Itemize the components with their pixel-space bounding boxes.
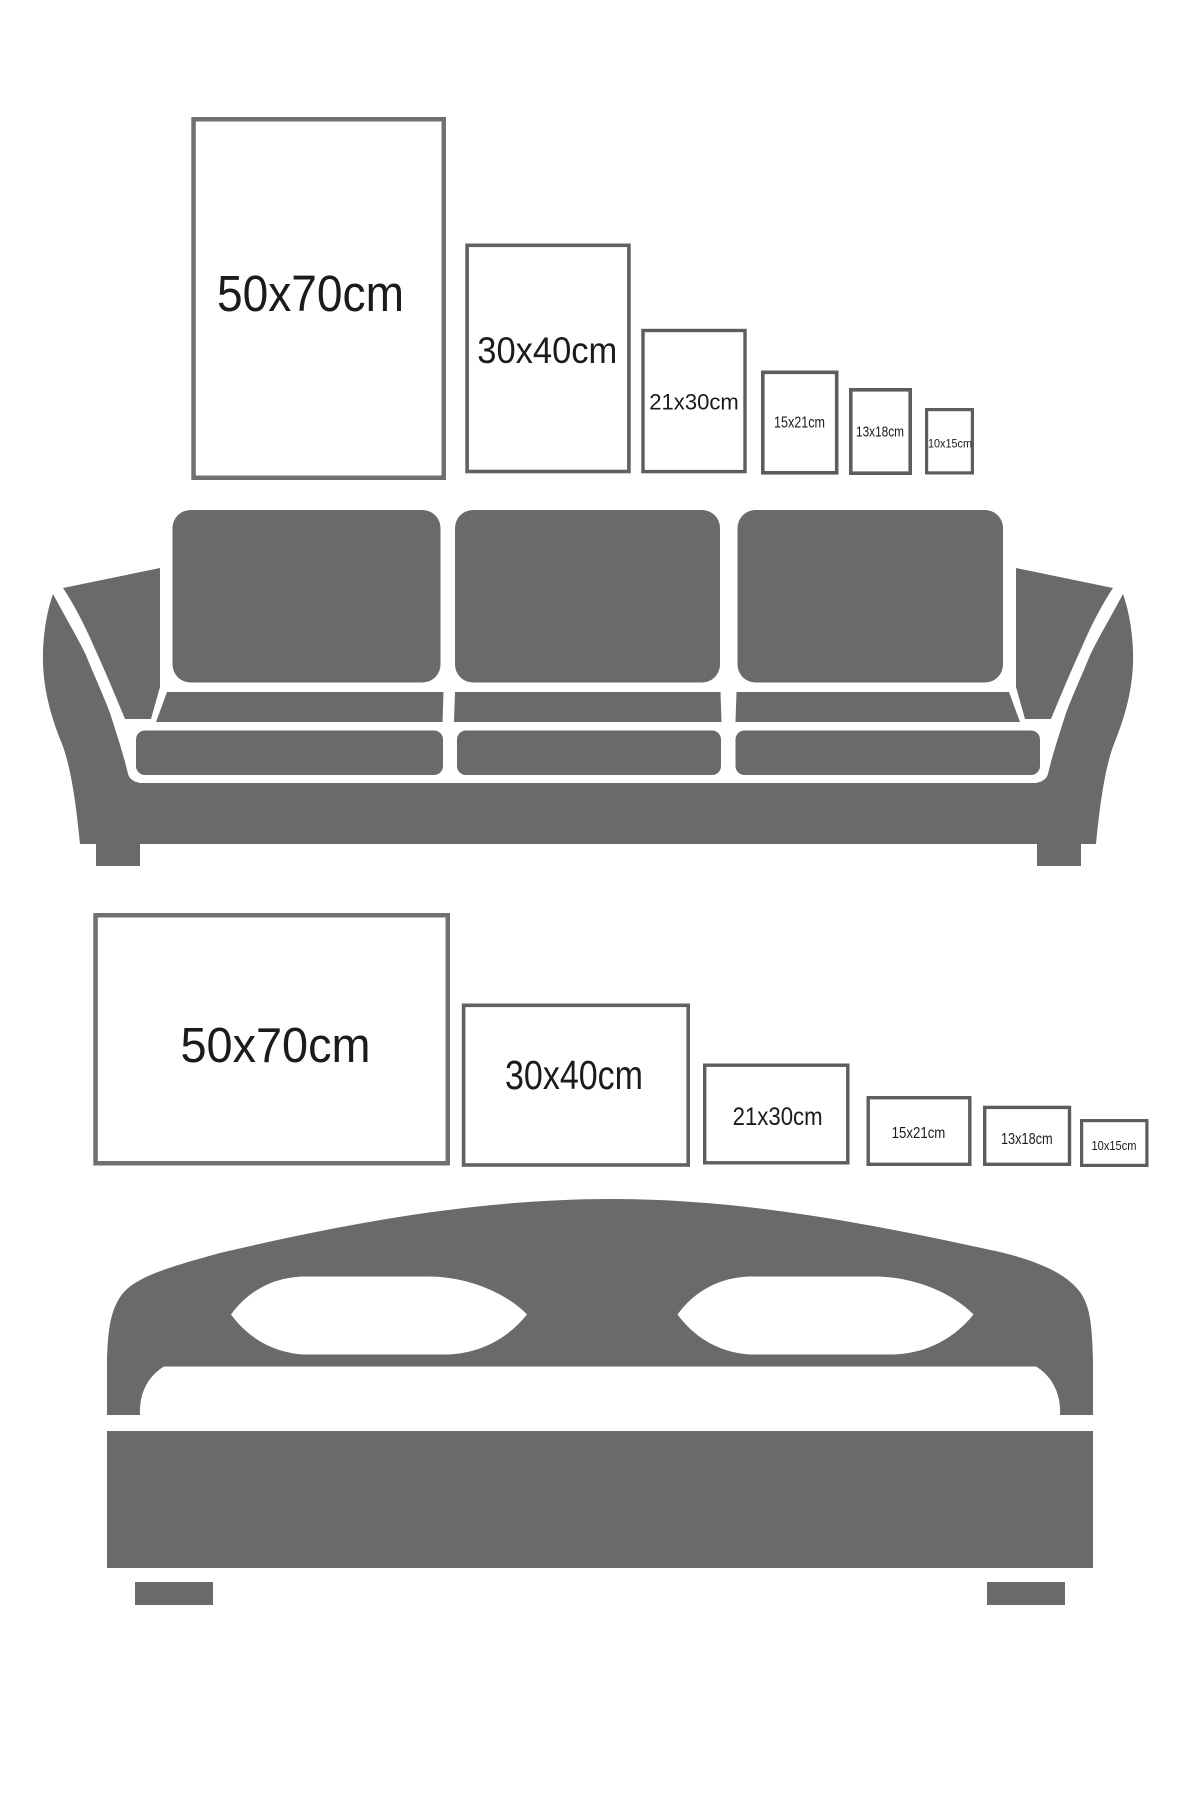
svg-text:10x15cm: 10x15cm bbox=[1092, 1138, 1137, 1153]
svg-text:21x30cm: 21x30cm bbox=[733, 1103, 823, 1131]
svg-text:21x30cm: 21x30cm bbox=[649, 389, 738, 414]
svg-text:30x40cm: 30x40cm bbox=[477, 330, 617, 371]
svg-text:10x15cm: 10x15cm bbox=[928, 437, 972, 451]
svg-text:15x21cm: 15x21cm bbox=[774, 415, 825, 432]
svg-text:30x40cm: 30x40cm bbox=[505, 1052, 643, 1098]
svg-text:13x18cm: 13x18cm bbox=[856, 425, 904, 441]
svg-text:15x21cm: 15x21cm bbox=[892, 1125, 946, 1142]
svg-text:50x70cm: 50x70cm bbox=[217, 265, 404, 322]
svg-text:13x18cm: 13x18cm bbox=[1001, 1131, 1053, 1148]
svg-text:50x70cm: 50x70cm bbox=[181, 1018, 371, 1073]
